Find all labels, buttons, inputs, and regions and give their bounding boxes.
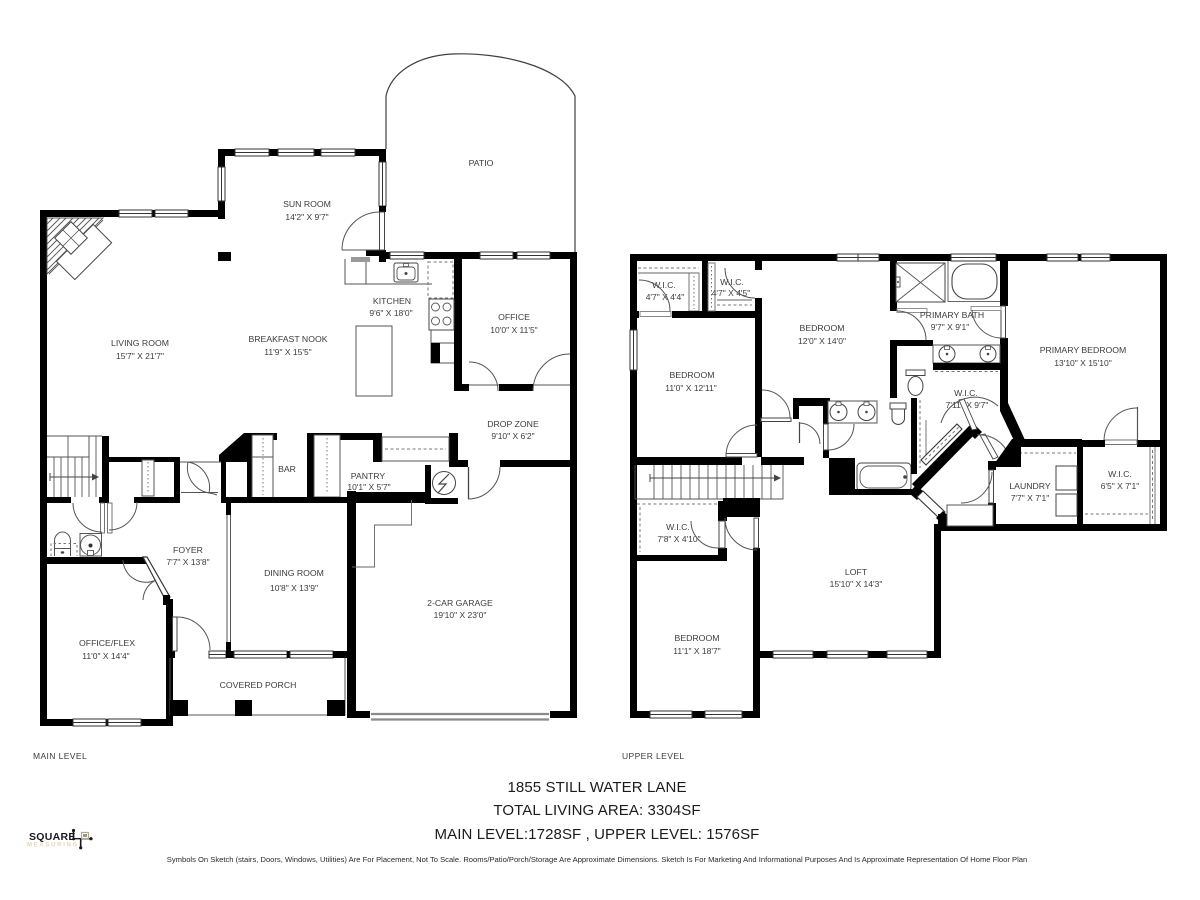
svg-text:1855 STILL WATER LANE: 1855 STILL WATER LANE bbox=[507, 779, 686, 796]
svg-text:19'10" X 23'0": 19'10" X 23'0" bbox=[434, 610, 487, 620]
svg-text:2-CAR GARAGE: 2-CAR GARAGE bbox=[427, 598, 493, 608]
svg-text:PRIMARY BEDROOM: PRIMARY BEDROOM bbox=[1040, 345, 1127, 355]
svg-text:TOTAL LIVING AREA: 3304SF: TOTAL LIVING AREA: 3304SF bbox=[493, 802, 700, 819]
svg-text:7'8" X 4'10": 7'8" X 4'10" bbox=[657, 534, 700, 544]
svg-text:SUN ROOM: SUN ROOM bbox=[283, 199, 331, 209]
svg-text:BAR: BAR bbox=[278, 464, 296, 474]
svg-text:MAIN LEVEL:1728SF , UPPER LEVE: MAIN LEVEL:1728SF , UPPER LEVEL: 1576SF bbox=[435, 826, 760, 843]
svg-text:9'6" X 18'0": 9'6" X 18'0" bbox=[369, 308, 412, 318]
svg-text:OFFICE/FLEX: OFFICE/FLEX bbox=[79, 638, 135, 648]
svg-text:11'9" X 15'5": 11'9" X 15'5" bbox=[264, 347, 311, 357]
svg-text:UPPER LEVEL: UPPER LEVEL bbox=[622, 751, 685, 761]
svg-text:7'7" X 13'8": 7'7" X 13'8" bbox=[166, 557, 209, 567]
svg-text:Symbols On Sketch (stairs, Doo: Symbols On Sketch (stairs, Doors, Window… bbox=[167, 855, 1027, 864]
svg-text:9'7" X 9'1": 9'7" X 9'1" bbox=[931, 322, 970, 332]
svg-text:13'10" X 15'10": 13'10" X 15'10" bbox=[1054, 358, 1112, 368]
svg-text:W.I.C.: W.I.C. bbox=[954, 388, 978, 398]
svg-text:SQUARE: SQUARE bbox=[29, 831, 76, 843]
svg-text:W.I.C.: W.I.C. bbox=[1108, 469, 1132, 479]
svg-text:7'7" X 7'1": 7'7" X 7'1" bbox=[1011, 493, 1050, 503]
svg-text:15'7" X 21'7": 15'7" X 21'7" bbox=[116, 351, 164, 361]
svg-text:6'5" X 7'1": 6'5" X 7'1" bbox=[1101, 481, 1140, 491]
svg-text:MAIN LEVEL: MAIN LEVEL bbox=[33, 751, 87, 761]
svg-text:LOFT: LOFT bbox=[845, 567, 868, 577]
svg-text:14'2" X 9'7": 14'2" X 9'7" bbox=[285, 212, 328, 222]
svg-text:9'10" X 6'2": 9'10" X 6'2" bbox=[491, 431, 534, 441]
svg-text:DINING ROOM: DINING ROOM bbox=[264, 568, 324, 578]
svg-text:LIVING ROOM: LIVING ROOM bbox=[111, 338, 169, 348]
svg-text:W.I.C.: W.I.C. bbox=[720, 277, 744, 287]
svg-text:OFFICE: OFFICE bbox=[498, 312, 530, 322]
svg-text:W.I.C.: W.I.C. bbox=[666, 522, 690, 532]
svg-text:11'0" X 14'4": 11'0" X 14'4" bbox=[82, 651, 129, 661]
svg-text:12'0" X 14'0": 12'0" X 14'0" bbox=[798, 336, 846, 346]
svg-text:FOYER: FOYER bbox=[173, 545, 203, 555]
svg-text:BEDROOM: BEDROOM bbox=[675, 633, 720, 643]
svg-text:BREAKFAST NOOK: BREAKFAST NOOK bbox=[248, 334, 327, 344]
svg-text:10'0" X 11'5": 10'0" X 11'5" bbox=[490, 325, 537, 335]
svg-text:LAUNDRY: LAUNDRY bbox=[1009, 481, 1051, 491]
svg-text:PRIMARY BATH: PRIMARY BATH bbox=[920, 310, 984, 320]
svg-text:10'8" X 13'9": 10'8" X 13'9" bbox=[270, 583, 318, 593]
svg-text:KITCHEN: KITCHEN bbox=[373, 296, 411, 306]
svg-text:PATIO: PATIO bbox=[469, 158, 494, 168]
svg-text:COVERED PORCH: COVERED PORCH bbox=[220, 680, 297, 690]
svg-text:BEDROOM: BEDROOM bbox=[670, 370, 715, 380]
svg-text:11'0" X 12'11": 11'0" X 12'11" bbox=[665, 383, 717, 393]
svg-text:DROP ZONE: DROP ZONE bbox=[487, 419, 539, 429]
svg-text:11'1" X 18'7": 11'1" X 18'7" bbox=[673, 646, 720, 656]
svg-text:MEASURING: MEASURING bbox=[27, 843, 79, 849]
svg-text:BEDROOM: BEDROOM bbox=[800, 323, 845, 333]
svg-text:10'1" X 5'7": 10'1" X 5'7" bbox=[347, 482, 390, 492]
svg-text:15'10" X 14'3": 15'10" X 14'3" bbox=[830, 579, 883, 589]
svg-text:PANTRY: PANTRY bbox=[351, 471, 386, 481]
